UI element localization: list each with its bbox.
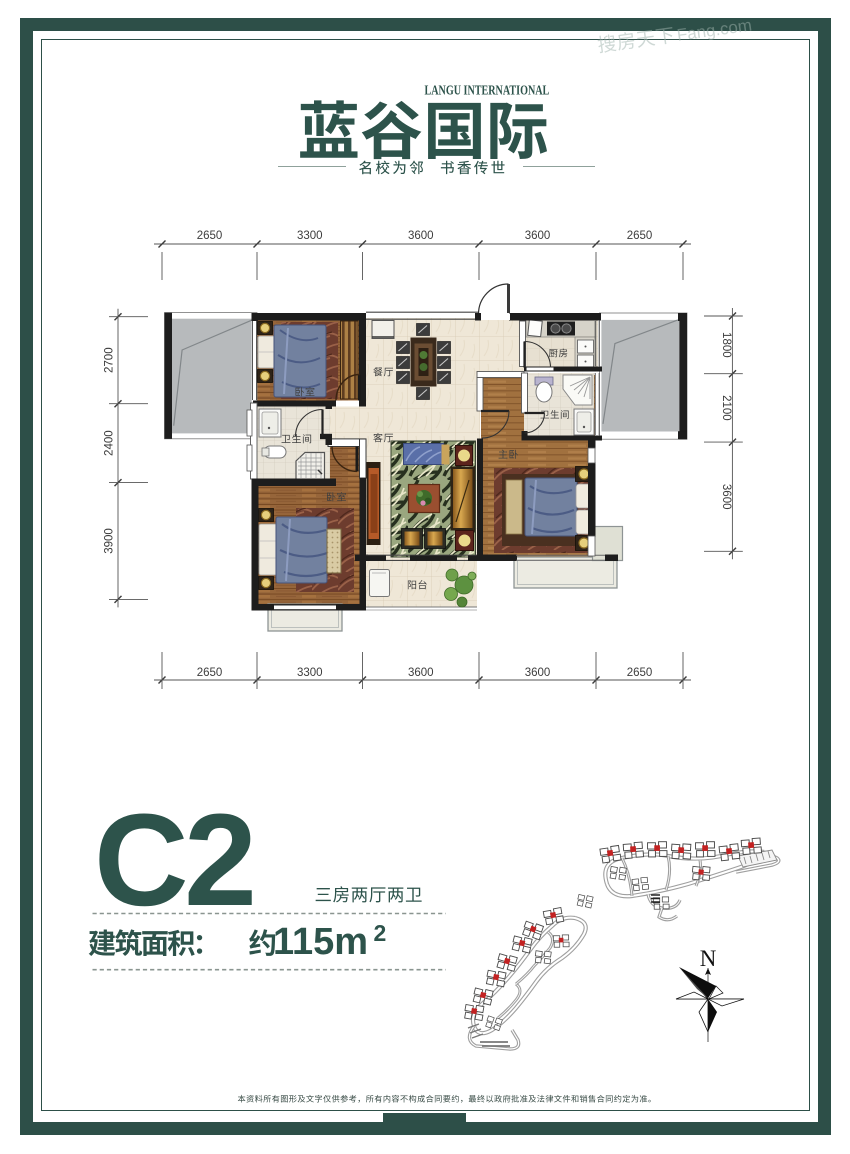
- svg-text:2400: 2400: [104, 430, 116, 456]
- svg-text:C2: C2: [94, 786, 252, 933]
- svg-text:3600: 3600: [525, 230, 551, 242]
- svg-text:1800: 1800: [720, 332, 732, 358]
- svg-text:3600: 3600: [720, 484, 732, 510]
- svg-text:3600: 3600: [408, 230, 434, 242]
- svg-text:115m: 115m: [273, 921, 368, 963]
- svg-text:2650: 2650: [197, 230, 223, 242]
- svg-text:3300: 3300: [297, 667, 323, 679]
- svg-text:3600: 3600: [525, 667, 551, 679]
- svg-text:N: N: [700, 946, 717, 971]
- svg-text:2650: 2650: [627, 230, 653, 242]
- svg-text:2: 2: [374, 920, 387, 946]
- svg-text:2100: 2100: [720, 395, 732, 421]
- svg-text:3600: 3600: [408, 667, 434, 679]
- svg-text:2700: 2700: [104, 347, 116, 373]
- svg-text:LANGU INTERNATIONAL: LANGU INTERNATIONAL: [425, 83, 550, 98]
- svg-text:2650: 2650: [197, 667, 223, 679]
- svg-text:3300: 3300: [297, 230, 323, 242]
- svg-text:3900: 3900: [104, 528, 116, 554]
- svg-text:Fang.com: Fang.com: [676, 16, 754, 45]
- svg-text:2650: 2650: [627, 667, 653, 679]
